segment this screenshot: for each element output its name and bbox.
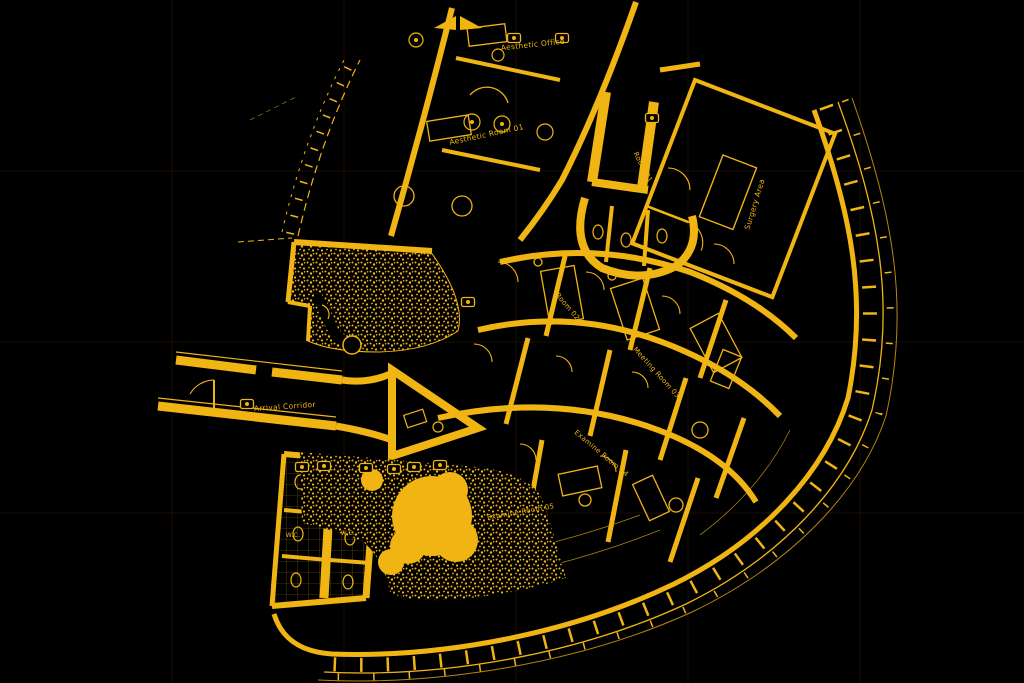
label-wc-left: W.C. bbox=[286, 532, 300, 539]
walkway-end bbox=[343, 336, 361, 354]
double-door-icon bbox=[434, 16, 456, 30]
arrival-corridor bbox=[158, 352, 392, 440]
bathroom-pod-wall bbox=[580, 198, 694, 276]
label-surgery-area: Surgery Area bbox=[743, 178, 767, 231]
column-marker-icon bbox=[388, 465, 401, 474]
label-meeting-room-03: Meeting Room 03 bbox=[631, 345, 681, 399]
column-marker-icon bbox=[296, 463, 309, 472]
column-marker-icon bbox=[646, 114, 659, 123]
label-wc-right: W.C. bbox=[341, 530, 355, 537]
label-examine-room-04: Examine Room 04 bbox=[573, 428, 631, 478]
inner-arc-curtainwall bbox=[238, 60, 360, 242]
label-room-02: Room 02 bbox=[554, 291, 581, 322]
column-marker-icon bbox=[408, 463, 421, 472]
column-marker-icon bbox=[360, 464, 373, 473]
column-marker-icon bbox=[318, 462, 331, 471]
label-aesthetic-room-01: Aesthetic Room 01 bbox=[448, 122, 524, 147]
floor-plan-svg: Aesthetic Office Aesthetic Room 01 Room … bbox=[0, 0, 1024, 683]
column-marker-icon bbox=[241, 400, 254, 409]
column-marker-icon bbox=[434, 461, 447, 470]
floorplan-canvas: Aesthetic Office Aesthetic Room 01 Room … bbox=[0, 0, 1024, 683]
garden-courtyard bbox=[288, 242, 459, 354]
column-marker-icon bbox=[462, 298, 475, 307]
